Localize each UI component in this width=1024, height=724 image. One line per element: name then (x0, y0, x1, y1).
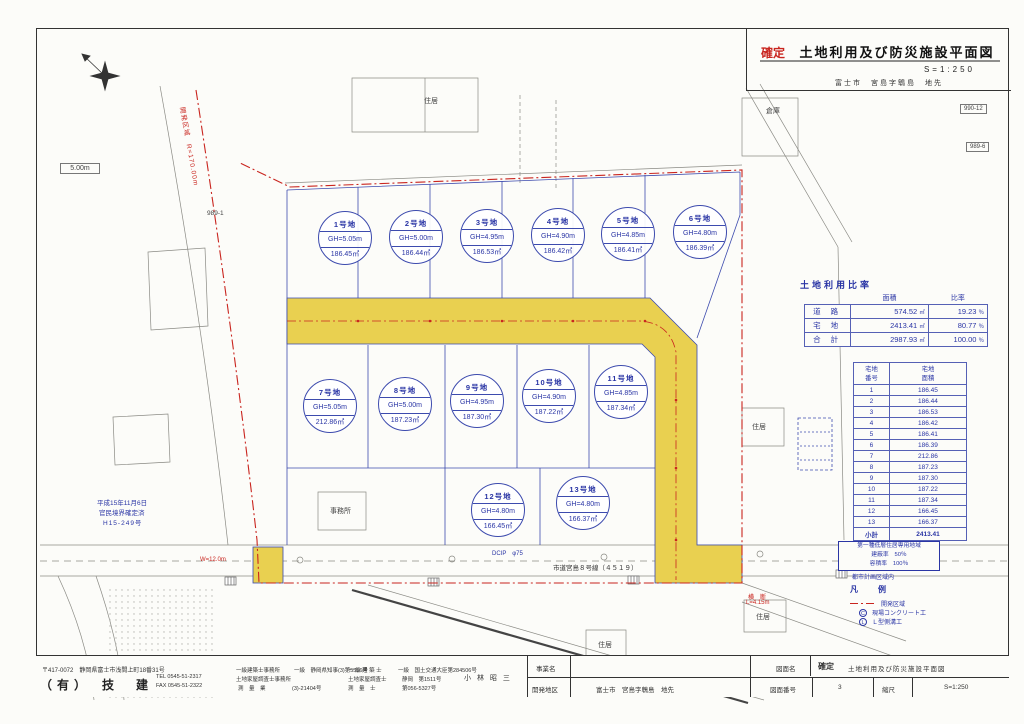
zoning-coverage: 建蔽率 50％ (839, 551, 939, 560)
lot-no: 4 (854, 418, 890, 429)
zoning-far: 容積率 100％ (839, 560, 939, 569)
lot-badge-3: 3号地 GH=4.95m 186.53㎡ (460, 209, 514, 263)
lot-badge-12: 12号地 GH=4.80m 166.45㎡ (471, 483, 525, 537)
qualification-1: 一 級 建 築 士 (348, 666, 382, 674)
building-warehouse: 倉庫 (766, 106, 780, 116)
table-total-row: 小計 2413.41 (854, 528, 967, 541)
scale-label: 縮尺 (882, 684, 895, 694)
lot-no: 11 (854, 495, 890, 506)
ratio-unit: ％ (978, 324, 984, 330)
row-ratio: 100.00％ (928, 333, 987, 347)
lot-gh: GH=4.85m (595, 385, 647, 402)
row-ratio: 19.23％ (928, 305, 987, 319)
parcel-989-1: 989-1 (207, 210, 224, 217)
table-row: 5186.41 (854, 429, 967, 440)
lot-badge-10: 10号地 GH=4.90m 187.22㎡ (522, 369, 576, 423)
lot-gh: GH=4.95m (461, 229, 513, 246)
drawing-title: 土地利用及び防災施設平面図 (799, 45, 994, 60)
lot-gh: GH=4.80m (674, 225, 726, 242)
lot-gh: GH=4.80m (557, 496, 609, 513)
drawing-status-stamp: 確定 (818, 661, 834, 672)
building-office: 事務所 (330, 506, 351, 516)
company-tel: TEL 0545-51-2317 (156, 674, 202, 680)
lot-no: 9 (854, 473, 890, 484)
legend-item: C 現場コンクリート工 (850, 608, 926, 617)
lot-gh: GH=5.00m (379, 397, 431, 414)
dim-5m-box: 5.00m (60, 163, 100, 174)
lot-no: 1 (854, 385, 890, 396)
lot-area-value: 186.53 (889, 407, 966, 418)
l-gutter-symbol-icon: L (859, 618, 867, 626)
footer-title-block: 〒417-0072 静岡県富士市浅間上町18番31号 （有） 技 建 TEL 0… (36, 655, 1009, 697)
col-lot-no: 宅地番号 (854, 363, 890, 385)
area-unit: ㎡ (919, 324, 925, 330)
divider (912, 677, 913, 697)
lot-no: 2 (854, 396, 890, 407)
ratio-unit: ％ (978, 338, 984, 344)
land-use-table: 面積 比率 道 路 574.52㎡ 19.23％ 宅 地 2413.41㎡ 80… (804, 291, 988, 347)
lot-area-value: 187.23 (889, 462, 966, 473)
lot-no: 13 (854, 517, 890, 528)
row-area: 574.52㎡ (851, 305, 929, 319)
lot-no: 7 (854, 451, 890, 462)
lot-area-value: 186.44 (889, 396, 966, 407)
area-value: 574.52 (894, 307, 917, 316)
lot-badge-9: 9号地 GH=4.95m 187.30㎡ (450, 374, 504, 428)
area-value: 2987.93 (890, 335, 917, 344)
row-label: 道 路 (805, 305, 851, 319)
lot-gh: GH=5.05m (319, 231, 371, 248)
legend-title: 凡 例 (850, 584, 926, 595)
zoning-box: 第一種低層住居専用地域 建蔽率 50％ 容積率 100％ (838, 541, 940, 571)
table-row: 4186.42 (854, 418, 967, 429)
col-lot-area: 宅地面積 (889, 363, 966, 385)
row-label: 宅 地 (805, 319, 851, 333)
drawing-name-label: 図面名 (776, 663, 796, 673)
table-header-row: 宅地番号 宅地面積 (854, 363, 967, 385)
divider (812, 677, 813, 697)
office-line1: 一級建築士事務所 (236, 666, 280, 674)
lot-area-value: 186.41 (889, 429, 966, 440)
north-arrow-icon (82, 54, 119, 90)
table-header-row: 面積 比率 (805, 291, 988, 305)
drawing-number-label: 図面番号 (770, 684, 796, 694)
table-row: 1186.45 (854, 385, 967, 396)
lot-area-value: 187.22 (889, 484, 966, 495)
legend: 凡 例 開発区域 C 現場コンクリート工 L Ｌ型側溝工 (850, 584, 926, 626)
qualification-2: 土地家屋調査士 (348, 675, 387, 683)
table-row: 宅 地 2413.41㎡ 80.77％ (805, 319, 988, 333)
area-unit: ㎡ (919, 310, 925, 316)
lot-area-value: 166.45 (889, 506, 966, 517)
row-area: 2987.93㎡ (851, 333, 929, 347)
area-unit: ㎡ (919, 338, 925, 344)
lot-badge-8: 8号地 GH=5.00m 187.23㎡ (378, 377, 432, 431)
lot-area-value: 186.39 (889, 440, 966, 451)
planned-road (253, 298, 742, 583)
lot-no: 10 (854, 484, 890, 495)
company-fax: FAX 0545-51-2322 (156, 683, 202, 689)
table-row: 道 路 574.52㎡ 19.23％ (805, 305, 988, 319)
red-width-label: W=12.0m (200, 557, 226, 563)
concrete-symbol-icon: C (859, 609, 867, 617)
kanmin-number: H15-249号 (103, 517, 142, 527)
col-ratio: 比率 (928, 291, 987, 305)
table-row: 13166.37 (854, 517, 967, 528)
lot-area-value: 186.45 (889, 385, 966, 396)
lot-area-value: 212.86 (889, 451, 966, 462)
project-name-label: 事業名 (536, 663, 556, 673)
divider (873, 677, 874, 697)
kanmin-date: 平成15年11月6日 (97, 497, 147, 507)
drawing-name-value: 土地利用及び防災施設平面図 (848, 663, 946, 673)
divider (527, 677, 1009, 678)
office-line3-license: (3)-21404号 (292, 684, 321, 692)
road-name-label: 市道宮島８号線（４５１９） (553, 562, 638, 572)
kanmin-note: 官民境界確定済 (99, 507, 145, 517)
table-row: 7212.86 (854, 451, 967, 462)
area-value: 2413.41 (890, 321, 917, 330)
district-label: 開発地区 (532, 684, 558, 694)
table-row: 12166.45 (854, 506, 967, 517)
legend-label: Ｌ型側溝工 (872, 617, 902, 626)
legend-label: 現場コンクリート工 (872, 608, 926, 617)
table-row: 11187.34 (854, 495, 967, 506)
lot-badge-2: 2号地 GH=5.00m 186.44㎡ (389, 210, 443, 264)
lot-no: 6 (854, 440, 890, 451)
building-house: 住居 (424, 96, 438, 106)
lot-gh: GH=4.85m (602, 227, 654, 244)
lot-area-value: 166.37 (889, 517, 966, 528)
building-house: 住居 (752, 422, 766, 432)
row-ratio: 80.77％ (928, 319, 987, 333)
drawing-number-value: 3 (838, 684, 842, 691)
parcel-990-12: 990-12 (960, 104, 987, 114)
table-row: 9187.30 (854, 473, 967, 484)
lot-no: 5 (854, 429, 890, 440)
lot-area-value: 186.42 (889, 418, 966, 429)
lot-gh: GH=4.80m (472, 503, 524, 520)
qualification-3: 測 量 士 (348, 684, 376, 692)
qualification-3-license: 第056-5327号 (402, 684, 436, 692)
lot-area-table: 宅地番号 宅地面積 1186.45 2186.44 3186.53 4186.4… (853, 362, 967, 541)
lot-badge-6: 6号地 GH=4.80m 186.39㎡ (673, 205, 727, 259)
table-row: 8187.23 (854, 462, 967, 473)
building-house: 住居 (756, 612, 770, 622)
lot-no: 3 (854, 407, 890, 418)
water-pipe-label: DCIP φ75 (492, 548, 523, 557)
table-row: 2186.44 (854, 396, 967, 407)
row-label: 合 計 (805, 333, 851, 347)
lot-badge-5: 5号地 GH=4.85m 186.41㎡ (601, 207, 655, 261)
lot-no: 8 (854, 462, 890, 473)
lot-badge-7: 7号地 GH=5.05m 212.86㎡ (303, 379, 357, 433)
lot-badge-11: 11号地 GH=4.85m 187.34㎡ (594, 365, 648, 419)
table-row: 3186.53 (854, 407, 967, 418)
drawing-sheet: 確定 土地利用及び防災施設平面図 S=1:250 富士市 宮島字鵯島 地先 1号… (0, 0, 1024, 724)
row-area: 2413.41㎡ (851, 319, 929, 333)
lot-gh: GH=5.00m (390, 230, 442, 247)
district-value: 富士市 宮島字鵯島 地先 (596, 684, 674, 694)
ratio-value: 19.23 (958, 307, 977, 316)
ratio-value: 100.00 (954, 335, 977, 344)
lot-gh: GH=5.05m (304, 399, 356, 416)
table-row: 6186.39 (854, 440, 967, 451)
lot-area-value: 187.30 (889, 473, 966, 484)
parcel-989-6: 989-6 (966, 142, 989, 152)
table-row: 合 計 2987.93㎡ 100.00％ (805, 333, 988, 347)
title-status-stamp: 確定 (761, 46, 785, 60)
red-length-label: L=4.15m (746, 600, 770, 606)
table-row: 10187.22 (854, 484, 967, 495)
legend-label: 開発区域 (881, 599, 905, 608)
title-block: 確定 土地利用及び防災施設平面図 S=1:250 富士市 宮島字鵯島 地先 (746, 28, 1011, 91)
engineer-name: 小 林 昭 三 (464, 673, 512, 683)
office-line3: 測 量 業 (238, 684, 266, 692)
office-line2: 土地家屋調査士事務所 (236, 675, 291, 683)
lot-gh: GH=4.90m (532, 228, 584, 245)
lot-badge-13: 13号地 GH=4.80m 166.37㎡ (556, 476, 610, 530)
ratio-unit: ％ (978, 310, 984, 316)
lot-badge-4: 4号地 GH=4.90m 186.42㎡ (531, 208, 585, 262)
land-use-table-title: 土地利用比率 (800, 278, 872, 291)
lot-area-value: 187.34 (889, 495, 966, 506)
scale-value: S=1:250 (944, 684, 968, 691)
company-name: （有） 技 建 (40, 676, 153, 693)
road-centerline (287, 321, 676, 580)
boundary-line-swatch (850, 603, 876, 605)
col-area: 面積 (851, 291, 929, 305)
zoning-district: 第一種低層住居専用地域 (839, 542, 939, 551)
total-value: 2413.41 (889, 528, 966, 541)
drawing-scale: S=1:250 (924, 65, 975, 74)
ratio-value: 80.77 (958, 321, 977, 330)
lot-badge-1: 1号地 GH=5.05m 186.45㎡ (318, 211, 372, 265)
qualification-2-license: 静岡 第1511号 (402, 675, 441, 683)
legend-item: 開発区域 (850, 599, 926, 608)
zoning-note: 都市計画区域内 (852, 572, 894, 581)
lot-gh: GH=4.90m (523, 389, 575, 406)
building-house: 住居 (598, 640, 612, 650)
lot-no: 12 (854, 506, 890, 517)
legend-item: L Ｌ型側溝工 (850, 617, 926, 626)
total-label: 小計 (854, 528, 890, 541)
divider (810, 656, 811, 676)
lot-gh: GH=4.95m (451, 394, 503, 411)
company-postal: 〒417-0072 静岡県富士市浅間上町18番31号 (42, 665, 165, 674)
drawing-location: 富士市 宮島字鵯島 地先 (835, 78, 943, 88)
